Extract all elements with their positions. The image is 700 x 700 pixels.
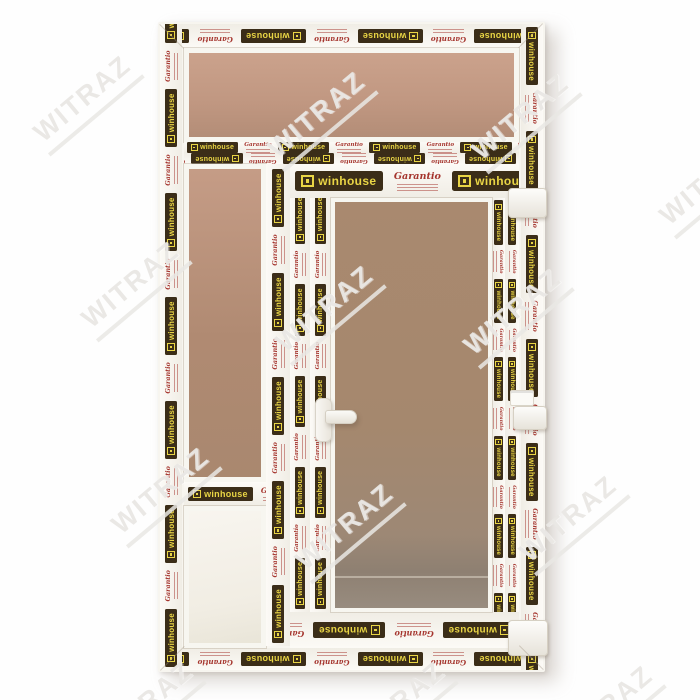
garantio-label: Garantio (164, 258, 172, 289)
winhouse-square-icon (528, 239, 536, 247)
garantio-mark: Garantio (294, 251, 305, 278)
frame-bottom-tape: winhouseGarantiowinhouseGarantiowinhouse… (160, 648, 543, 670)
side-lower-panel (184, 506, 266, 648)
fine-print-lines (525, 302, 529, 329)
winhouse-label: winhouse (496, 369, 502, 398)
winhouse-square-icon (167, 447, 175, 455)
garantio-label: Garantio (314, 35, 349, 44)
winhouse-square-icon (274, 319, 282, 327)
winhouse-label: winhouse (167, 24, 176, 28)
garantio-label: Garantio (164, 466, 172, 497)
winhouse-label: winhouse (274, 381, 283, 420)
winhouse-logo: winhouse (187, 142, 238, 152)
frame-right-tape: winhouseGarantiowinhouseGarantiowinhouse… (521, 24, 543, 670)
garantio-label: Garantio (294, 433, 300, 460)
frame-top-tape: winhouseGarantiowinhouseGarantiowinhouse… (160, 24, 543, 48)
winhouse-square-icon (409, 32, 417, 40)
winhouse-square-icon (274, 527, 282, 535)
winhouse-square-icon (371, 625, 380, 634)
winhouse-logo: winhouse (494, 436, 503, 480)
fine-print-lines (493, 408, 496, 428)
winhouse-square-icon (296, 598, 303, 605)
winhouse-label: winhouse (383, 144, 417, 151)
fine-print-lines (322, 253, 326, 277)
winhouse-logo: winhouse (165, 193, 178, 251)
watermark: WITRAZ (25, 48, 144, 157)
winhouse-logo: winhouse (358, 652, 423, 666)
winhouse-label: winhouse (509, 448, 515, 477)
fine-print-lines (302, 344, 306, 368)
window-door-unit: winhouseGarantiowinhouseGarantiowinhouse… (158, 22, 545, 672)
winhouse-label: winhouse (318, 174, 376, 188)
garantio-mark: Garantio (164, 570, 178, 601)
garantio-mark: Garantio (271, 442, 285, 473)
fine-print-lines (507, 487, 510, 507)
garantio-mark: Garantio (164, 50, 178, 81)
winhouse-label: winhouse (291, 144, 325, 151)
garantio-label: Garantio (164, 50, 172, 81)
winhouse-logo: winhouse (315, 558, 325, 609)
winhouse-logo: winhouse (278, 142, 329, 152)
winhouse-logo: winhouse (165, 401, 178, 459)
garantio-mark: Garantio (518, 142, 519, 153)
garantio-label: Garantio (498, 407, 504, 431)
garantio-label: Garantio (315, 524, 321, 551)
winhouse-square-icon (167, 135, 175, 143)
garantio-mark: Garantio (507, 250, 517, 274)
winhouse-logo: winhouse (315, 284, 325, 335)
winhouse-square-icon (301, 175, 314, 188)
mullion-tape-upper: winhouseGarantiowinhouseGarantiowinhouse… (184, 142, 519, 153)
winhouse-logo: winhouse (272, 273, 285, 331)
garantio-label: Garantio (531, 93, 539, 124)
winhouse-logo: winhouse (508, 593, 517, 612)
garantio-label: Garantio (198, 658, 233, 667)
winhouse-label: winhouse (297, 288, 304, 322)
garantio-label: Garantio (198, 35, 233, 44)
winhouse-logo: winhouse (526, 443, 539, 501)
winhouse-logo: winhouse (272, 169, 285, 227)
frame-left-tape: winhouseGarantiowinhouseGarantiowinhouse… (160, 24, 182, 670)
garantio-label: Garantio (511, 250, 517, 274)
fine-print-lines (342, 153, 366, 157)
winhouse-label: winhouse (496, 212, 502, 241)
winhouse-logo: winhouse (295, 558, 305, 609)
garantio-mark: Garantio (340, 153, 367, 164)
winhouse-logo: winhouse (272, 377, 285, 435)
garantio-mark: Garantio (507, 564, 517, 588)
garantio-mark: Garantio (249, 153, 276, 164)
winhouse-label: winhouse (167, 301, 176, 340)
door-right-stile-tape-inner: winhouseGarantiowinhouseGarantiowinhouse… (492, 198, 505, 612)
winhouse-square-icon (317, 325, 324, 332)
winhouse-label: winhouse (509, 291, 515, 320)
winhouse-square-icon (495, 439, 501, 445)
garantio-label: Garantio (394, 629, 433, 639)
garantio-mark: Garantio (164, 258, 178, 289)
winhouse-square-icon (193, 490, 201, 498)
garantio-mark: Garantio (314, 28, 349, 44)
winhouse-square-icon (509, 596, 515, 602)
transom-window (184, 48, 519, 142)
center-mullion-tape: winhouseGarantiowinhouseGarantiowinhouse… (266, 164, 290, 646)
winhouse-label: winhouse (509, 604, 515, 612)
winhouse-label: winhouse (363, 31, 407, 41)
winhouse-logo: winhouse (369, 142, 420, 152)
garantio-mark: Garantio (493, 328, 503, 352)
winhouse-label: winhouse (167, 405, 176, 444)
fine-print-lines (174, 53, 178, 80)
winhouse-logo: winhouse (315, 467, 325, 518)
garantio-label: Garantio (394, 171, 441, 182)
winhouse-square-icon (317, 507, 324, 514)
fine-print-lines (302, 435, 306, 459)
winhouse-logo: winhouse (508, 279, 517, 323)
winhouse-square-icon (509, 439, 515, 445)
winhouse-label: winhouse (528, 250, 537, 289)
winhouse-logo: winhouse (165, 89, 178, 147)
garantio-label: Garantio (164, 570, 172, 601)
garantio-mark: Garantio (431, 651, 466, 667)
winhouse-logo: winhouse (494, 593, 503, 612)
winhouse-square-icon (167, 239, 175, 247)
winhouse-logo: winhouse (241, 652, 306, 666)
winhouse-label: winhouse (297, 471, 304, 505)
winhouse-label: winhouse (496, 604, 502, 612)
winhouse-square-icon (509, 282, 515, 288)
winhouse-logo: winhouse (191, 153, 242, 163)
winhouse-logo: winhouse (494, 279, 503, 323)
winhouse-label: winhouse (528, 354, 537, 393)
door-glass (335, 202, 488, 608)
fine-print-lines (302, 526, 306, 550)
winhouse-label: winhouse (317, 562, 324, 596)
winhouse-label: winhouse (319, 625, 368, 636)
winhouse-square-icon (296, 325, 303, 332)
garantio-label: Garantio (315, 251, 321, 278)
garantio-label: Garantio (498, 250, 504, 274)
garantio-label: Garantio (518, 142, 519, 148)
winhouse-label: winhouse (297, 380, 304, 414)
winhouse-label: winhouse (528, 666, 537, 670)
winhouse-square-icon (495, 282, 501, 288)
winhouse-square-icon (274, 631, 282, 639)
fine-print-lines (322, 344, 326, 368)
garantio-label: Garantio (431, 658, 466, 667)
garantio-mark: Garantio (294, 524, 305, 551)
winhouse-logo: winhouse (295, 198, 305, 244)
winhouse-logo: winhouse (295, 284, 305, 335)
winhouse-label: winhouse (528, 42, 537, 81)
fine-print-lines (507, 565, 510, 585)
fine-print-lines (433, 651, 464, 656)
hinge-middle (513, 406, 547, 430)
garantio-label: Garantio (164, 362, 172, 393)
fine-print-lines (200, 651, 231, 656)
garantio-mark: Garantio (315, 524, 326, 551)
winhouse-logo: winhouse (494, 200, 503, 244)
watermark: WITRAZ (651, 131, 700, 240)
fine-print-lines (281, 444, 285, 471)
garantio-label: Garantio (511, 485, 517, 509)
winhouse-square-icon (458, 175, 471, 188)
side-window (184, 164, 266, 482)
garantio-mark: Garantio (525, 300, 539, 331)
garantio-label: Garantio (290, 629, 304, 639)
winhouse-logo: winhouse (508, 514, 517, 558)
fine-print-lines (302, 253, 306, 277)
garantio-mark: Garantio (164, 154, 178, 185)
winhouse-square-icon (191, 144, 198, 151)
winhouse-square-icon (528, 343, 536, 351)
fine-print-lines (317, 651, 348, 656)
garantio-label: Garantio (498, 485, 504, 509)
garantio-label: Garantio (271, 338, 279, 369)
garantio-mark: Garantio (493, 485, 503, 509)
garantio-label: Garantio (294, 251, 300, 278)
garantio-mark: Garantio (294, 433, 305, 460)
side-window-glass (189, 169, 261, 477)
winhouse-label: winhouse (200, 144, 234, 151)
winhouse-label: winhouse (474, 144, 508, 151)
winhouse-logo: winhouse (443, 622, 515, 637)
winhouse-label: winhouse (274, 277, 283, 316)
winhouse-label: winhouse (195, 155, 229, 162)
fine-print-lines (525, 510, 529, 537)
winhouse-label: winhouse (378, 155, 412, 162)
fine-print-lines (507, 330, 510, 350)
winhouse-label: winhouse (469, 155, 503, 162)
winhouse-logo: winhouse (526, 235, 539, 293)
winhouse-logo: winhouse (494, 514, 503, 558)
winhouse-logo: winhouse (272, 481, 285, 539)
winhouse-label: winhouse (496, 526, 502, 555)
fine-print-lines (174, 572, 178, 599)
winhouse-square-icon (509, 518, 515, 524)
winhouse-square-icon (293, 32, 301, 40)
winhouse-label: winhouse (274, 173, 283, 212)
winhouse-logo: winhouse (526, 339, 539, 397)
garantio-label: Garantio (164, 154, 172, 185)
winhouse-label: winhouse (274, 589, 283, 628)
winhouse-square-icon (274, 215, 282, 223)
garantio-label: Garantio (531, 300, 539, 331)
fine-print-lines (493, 565, 496, 585)
winhouse-label: winhouse (287, 155, 321, 162)
winhouse-label: winhouse (167, 613, 176, 652)
winhouse-logo: winhouse (295, 467, 305, 518)
winhouse-square-icon (509, 361, 515, 367)
door-left-stile-tape-outer: winhouseGarantiowinhouseGarantiowinhouse… (290, 198, 310, 612)
winhouse-square-icon (323, 155, 330, 162)
garantio-label: Garantio (511, 564, 517, 588)
fine-print-lines (290, 621, 302, 627)
winhouse-square-icon (464, 144, 471, 151)
fine-print-lines (433, 28, 464, 33)
garantio-mark: Garantio (294, 342, 305, 369)
side-mid-rail-tape: winhouseGarantiowinhouseGarantio (184, 482, 266, 506)
garantio-label: Garantio (427, 142, 454, 148)
winhouse-square-icon (409, 655, 417, 663)
garantio-label: Garantio (431, 35, 466, 44)
door-handle (325, 410, 357, 424)
garantio-mark: Garantio (394, 171, 441, 191)
garantio-label: Garantio (314, 658, 349, 667)
fine-print-lines (317, 28, 348, 33)
winhouse-logo: winhouse (283, 153, 334, 163)
fine-print-lines (322, 526, 326, 550)
winhouse-square-icon (528, 136, 536, 144)
winhouse-square-icon (495, 596, 501, 602)
garantio-label: Garantio (271, 546, 279, 577)
winhouse-label: winhouse (317, 471, 324, 505)
garantio-mark: Garantio (493, 250, 503, 274)
garantio-mark: Garantio (184, 153, 185, 164)
garantio-mark: Garantio (244, 142, 271, 153)
winhouse-label: winhouse (479, 31, 523, 41)
garantio-label: Garantio (271, 234, 279, 265)
winhouse-square-icon (317, 234, 324, 241)
winhouse-logo: winhouse (313, 622, 385, 637)
transom-glass (189, 53, 514, 137)
winhouse-square-icon (528, 447, 536, 455)
hinge-sticker (510, 390, 534, 406)
winhouse-label: winhouse (448, 625, 497, 636)
hinge-bottom (508, 620, 548, 656)
fine-print-lines (507, 251, 510, 271)
winhouse-square-icon (296, 507, 303, 514)
garantio-mark: Garantio (315, 342, 326, 369)
garantio-label: Garantio (335, 142, 362, 148)
fine-print-lines (200, 28, 231, 33)
winhouse-label: winhouse (363, 654, 407, 664)
mullion-tape-lower: winhouseGarantiowinhouseGarantiowinhouse… (184, 153, 519, 164)
winhouse-label: winhouse (297, 198, 304, 231)
door-bottom-rail-tape: winhouseGarantiowinhouseGarantiowinhouse… (290, 612, 519, 648)
fine-print-lines (174, 260, 178, 287)
winhouse-label: winhouse (274, 485, 283, 524)
winhouse-label: winhouse (204, 489, 248, 499)
garantio-mark: Garantio (271, 234, 285, 265)
fine-print-lines (281, 548, 285, 575)
product-photo: winhouseGarantiowinhouseGarantiowinhouse… (0, 0, 700, 700)
garantio-mark: Garantio (507, 328, 517, 352)
fine-print-lines (493, 487, 496, 507)
winhouse-logo: winhouse (526, 131, 539, 189)
garantio-mark: Garantio (394, 621, 433, 638)
winhouse-logo: winhouse (465, 153, 516, 163)
winhouse-logo: winhouse (241, 29, 306, 43)
winhouse-label: winhouse (246, 654, 290, 664)
winhouse-label: winhouse (167, 93, 176, 132)
winhouse-logo: winhouse (165, 297, 178, 355)
garantio-mark: Garantio (525, 508, 539, 539)
winhouse-logo: winhouse (272, 585, 285, 643)
garantio-mark: Garantio (198, 651, 233, 667)
winhouse-square-icon (414, 155, 421, 162)
winhouse-square-icon (495, 361, 501, 367)
garantio-label: Garantio (315, 342, 321, 369)
winhouse-label: winhouse (509, 526, 515, 555)
garantio-label: Garantio (294, 342, 300, 369)
garantio-mark: Garantio (164, 362, 178, 393)
fine-print-lines (507, 408, 510, 428)
winhouse-logo: winhouse (526, 547, 539, 605)
winhouse-square-icon (274, 423, 282, 431)
garantio-mark: Garantio (198, 28, 233, 44)
winhouse-logo: winhouse (295, 376, 305, 427)
winhouse-square-icon (495, 518, 501, 524)
garantio-label: Garantio (244, 142, 271, 148)
hinge-top (508, 188, 547, 218)
winhouse-square-icon (167, 343, 175, 351)
winhouse-logo: winhouse (295, 171, 383, 190)
winhouse-label: winhouse (496, 291, 502, 320)
door-top-rail-tape: winhouseGarantiowinhouseGarantiowinhouse… (290, 164, 519, 198)
garantio-mark: Garantio (431, 28, 466, 44)
garantio-mark: Garantio (315, 251, 326, 278)
fine-print-lines (281, 236, 285, 263)
winhouse-square-icon (317, 598, 324, 605)
winhouse-square-icon (373, 144, 380, 151)
fine-print-lines (397, 621, 431, 627)
winhouse-logo: winhouse (165, 505, 178, 563)
garantio-mark: Garantio (507, 485, 517, 509)
winhouse-square-icon (296, 234, 303, 241)
winhouse-logo: winhouse (494, 357, 503, 401)
winhouse-label: winhouse (167, 197, 176, 236)
winhouse-logo: winhouse (526, 27, 539, 85)
watermark: WITRAZ (547, 658, 666, 700)
winhouse-label: winhouse (167, 509, 176, 548)
garantio-mark: Garantio (290, 621, 304, 638)
panel-surface (189, 511, 261, 643)
garantio-mark: Garantio (335, 142, 362, 153)
winhouse-logo: winhouse (188, 487, 253, 501)
winhouse-logo: winhouse (508, 436, 517, 480)
fine-print-lines (525, 95, 529, 122)
winhouse-label: winhouse (297, 562, 304, 596)
fine-print-lines (251, 153, 275, 157)
winhouse-label: winhouse (528, 458, 537, 497)
winhouse-square-icon (293, 655, 301, 663)
fine-print-lines (281, 340, 285, 367)
winhouse-label: winhouse (528, 562, 537, 601)
fine-print-lines (433, 153, 457, 157)
garantio-label: Garantio (271, 442, 279, 473)
garantio-mark: Garantio (493, 564, 503, 588)
garantio-mark: Garantio (427, 142, 454, 153)
garantio-label: Garantio (294, 524, 300, 551)
garantio-label: Garantio (531, 508, 539, 539)
winhouse-square-icon (505, 155, 512, 162)
garantio-mark: Garantio (271, 338, 285, 369)
garantio-label: Garantio (511, 328, 517, 352)
winhouse-logo: winhouse (315, 198, 325, 244)
winhouse-square-icon (528, 551, 536, 559)
garantio-label: Garantio (498, 328, 504, 352)
fine-print-lines (493, 251, 496, 271)
garantio-mark: Garantio (431, 153, 458, 164)
winhouse-label: winhouse (475, 174, 519, 188)
winhouse-square-icon (167, 551, 175, 559)
fine-print-lines (397, 184, 438, 191)
garantio-mark: Garantio (271, 546, 285, 577)
winhouse-square-icon (296, 416, 303, 423)
winhouse-label: winhouse (246, 31, 290, 41)
fine-print-lines (174, 364, 178, 391)
garantio-mark: Garantio (493, 407, 503, 431)
